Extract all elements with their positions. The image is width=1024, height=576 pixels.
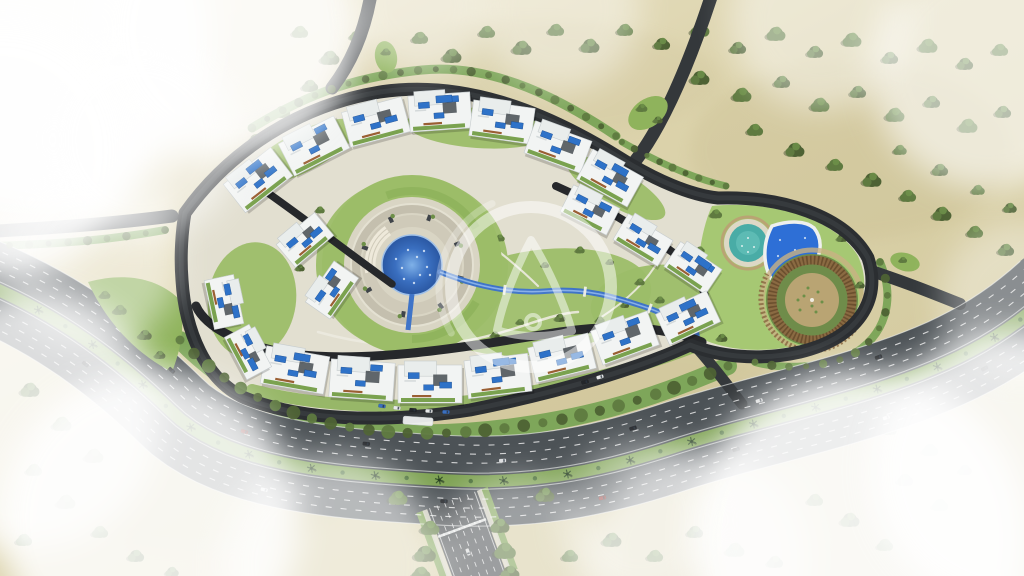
palm-crown <box>438 479 441 482</box>
roof-court <box>365 371 380 383</box>
palm-crown <box>566 473 569 476</box>
car-body <box>499 459 506 463</box>
buffer-bush <box>752 359 759 366</box>
tree-canopy <box>753 124 760 131</box>
buffer-bush <box>403 428 413 438</box>
buffer-bush <box>253 393 262 402</box>
tree-canopy <box>739 88 747 96</box>
buffer-bush <box>650 389 661 400</box>
pool-sparkle <box>401 267 403 269</box>
garden-speckle <box>817 291 820 294</box>
pool-sparkle <box>777 255 779 257</box>
plaza-tree <box>398 314 402 318</box>
plaza-tree <box>363 286 367 290</box>
median-bush <box>720 430 724 434</box>
buffer-bush <box>723 183 730 190</box>
buffer-bush <box>851 348 860 357</box>
rooftop-pool <box>492 376 503 383</box>
tree-canopy <box>579 246 583 250</box>
buffer-bush <box>865 338 873 346</box>
pool-sparkle <box>804 237 806 239</box>
car-body <box>442 410 449 414</box>
tree-canopy <box>869 173 877 181</box>
tree-canopy <box>659 296 663 300</box>
rooftop-pool <box>424 385 434 391</box>
rooftop-pool <box>418 102 429 109</box>
car-body <box>440 499 447 503</box>
pergola-strip <box>412 395 431 397</box>
buffer-bush <box>363 424 374 435</box>
tree-canopy <box>939 207 947 215</box>
buffer-bush <box>188 348 199 359</box>
car-windshield <box>413 409 415 412</box>
buffer-bush <box>519 83 525 89</box>
buffer-bush <box>704 367 717 380</box>
buffer-bush <box>485 72 492 79</box>
buffer-bush <box>381 425 395 439</box>
rooftop-pool <box>475 366 487 373</box>
car-body <box>363 442 370 446</box>
buffer-bush <box>710 180 715 185</box>
median-bush <box>404 476 408 480</box>
central-plaza <box>322 175 502 355</box>
terrace-garden <box>401 398 455 402</box>
buffer-bush <box>202 359 216 373</box>
buffer-bush <box>884 292 891 299</box>
tree-canopy <box>833 159 840 166</box>
parked-car <box>378 404 386 409</box>
buffer-bush <box>421 427 434 440</box>
garden-speckle <box>815 311 818 314</box>
rooftop-pool <box>355 380 365 386</box>
highway-car <box>440 499 447 503</box>
apartment-building <box>408 88 475 135</box>
buffer-bush <box>619 139 625 145</box>
buffer-bush <box>556 414 567 425</box>
plaza-tree <box>362 242 366 246</box>
tree-canopy <box>499 234 503 238</box>
buffer-bush <box>538 418 547 427</box>
fountain-sparkle <box>747 251 749 253</box>
buffer-bush <box>881 308 889 316</box>
pool-sparkle <box>407 249 409 251</box>
buffer-bush <box>219 372 229 382</box>
garden-speckle <box>821 301 824 304</box>
buffer-bush <box>501 76 509 84</box>
buffer-bush <box>785 363 793 371</box>
tree-canopy <box>792 143 800 151</box>
buffer-bush <box>598 123 604 129</box>
tree-canopy <box>640 104 644 108</box>
tree-canopy <box>714 209 719 214</box>
buffer-bush <box>582 113 590 121</box>
garden-speckle <box>811 305 814 308</box>
parked-car <box>425 409 432 413</box>
car-body <box>425 409 432 413</box>
car-windshield <box>447 411 449 414</box>
buffer-bush <box>876 325 882 331</box>
buffer-bush <box>460 426 471 437</box>
site-plan-render <box>0 0 1024 576</box>
car-windshield <box>503 459 505 462</box>
highway-car <box>499 459 506 463</box>
buffer-bush <box>499 423 509 433</box>
buffer-bush <box>881 274 890 283</box>
rooftop-pool <box>341 367 352 374</box>
pool-sparkle <box>395 258 397 260</box>
plaza-tree <box>431 215 435 219</box>
buffer-bush <box>803 363 809 369</box>
car-body <box>409 408 416 412</box>
garden-speckle <box>799 309 802 312</box>
highway-car <box>363 442 370 446</box>
buffer-bush <box>656 158 663 165</box>
buffer-bush <box>612 132 620 140</box>
car-windshield <box>445 500 447 503</box>
buffer-bush <box>819 360 827 368</box>
tree-canopy <box>906 190 913 197</box>
buffer-bush <box>668 164 676 172</box>
garden-speckle <box>803 295 806 298</box>
rooftop-pool <box>434 112 444 118</box>
garden-center-dot <box>810 298 814 302</box>
parked-car <box>442 410 449 414</box>
pool-sparkle <box>419 274 421 276</box>
buffer-bush <box>287 406 301 420</box>
buffer-bush <box>270 400 281 411</box>
pool-sparkle <box>416 256 418 258</box>
tree-canopy <box>973 226 980 233</box>
masterplan-screenshot <box>0 0 1024 576</box>
car-body <box>378 404 386 409</box>
fog-patch <box>40 40 240 240</box>
car-windshield <box>367 443 369 446</box>
buffer-bush <box>695 174 702 181</box>
pool-sparkle <box>423 250 425 252</box>
car-windshield <box>430 410 432 413</box>
car-body <box>393 406 401 410</box>
tree-canopy <box>902 257 905 260</box>
buffer-bush <box>767 361 776 370</box>
buffer-bush <box>631 145 638 152</box>
rooftop-pool <box>482 108 494 115</box>
buffer-bush <box>378 71 387 80</box>
pool-sparkle <box>426 266 428 268</box>
garden-speckle <box>807 287 810 290</box>
buffer-bush <box>234 382 247 395</box>
buffer-bush <box>442 428 451 437</box>
buffer-bush <box>574 408 588 422</box>
rooftop-pool <box>495 122 506 129</box>
buffer-bush <box>612 399 625 412</box>
buffer-bush <box>307 413 317 423</box>
palm-crown <box>690 440 693 443</box>
median-bush <box>469 479 473 483</box>
buffer-bush <box>345 423 354 432</box>
rooftop-pool <box>440 382 452 388</box>
apartment-building <box>398 361 464 406</box>
buffer-bush <box>724 362 733 371</box>
pool-sparkle <box>779 239 781 241</box>
tree-canopy <box>697 71 705 79</box>
fountain-sparkle <box>741 245 743 247</box>
rooftop-pool <box>436 95 452 103</box>
buffer-bush <box>687 376 697 386</box>
roof-line <box>404 380 416 382</box>
tree-canopy <box>657 116 661 120</box>
tree-canopy <box>859 281 863 285</box>
buffer-bush <box>517 419 530 432</box>
buffer-bush <box>567 105 574 112</box>
buffer-bush <box>478 423 492 437</box>
parked-car <box>409 408 416 412</box>
buffer-bush <box>362 75 370 83</box>
buffer-bush <box>667 381 681 395</box>
buffer-bush <box>683 170 689 176</box>
parked-car <box>393 406 401 410</box>
buffer-bush <box>550 95 559 104</box>
garden-speckle <box>797 299 800 302</box>
fountain-sparkle <box>747 237 749 239</box>
pool-sparkle <box>429 274 431 276</box>
tree-canopy <box>660 38 667 45</box>
rooftop-pool <box>408 373 419 379</box>
buffer-bush <box>176 336 185 345</box>
plaza-tree <box>390 214 394 218</box>
buffer-bush <box>876 258 884 266</box>
rooftop-pool <box>370 365 382 372</box>
roof-court <box>442 102 456 114</box>
buffer-bush <box>644 153 649 158</box>
buffer-bush <box>595 406 605 416</box>
pool-sparkle <box>403 278 405 280</box>
buffer-bush <box>467 67 476 76</box>
fountain-sparkle <box>753 246 755 248</box>
pool-sparkle <box>413 282 415 284</box>
buffer-bush <box>535 89 543 97</box>
car-windshield <box>397 407 399 410</box>
tree-canopy <box>158 351 162 355</box>
buffer-bush <box>324 417 337 430</box>
tree-canopy <box>319 206 323 210</box>
tree-canopy <box>639 278 643 282</box>
buffer-bush <box>633 396 642 405</box>
buffer-bush <box>836 356 843 363</box>
tree-canopy <box>720 334 724 338</box>
tree-canopy <box>1008 203 1014 209</box>
